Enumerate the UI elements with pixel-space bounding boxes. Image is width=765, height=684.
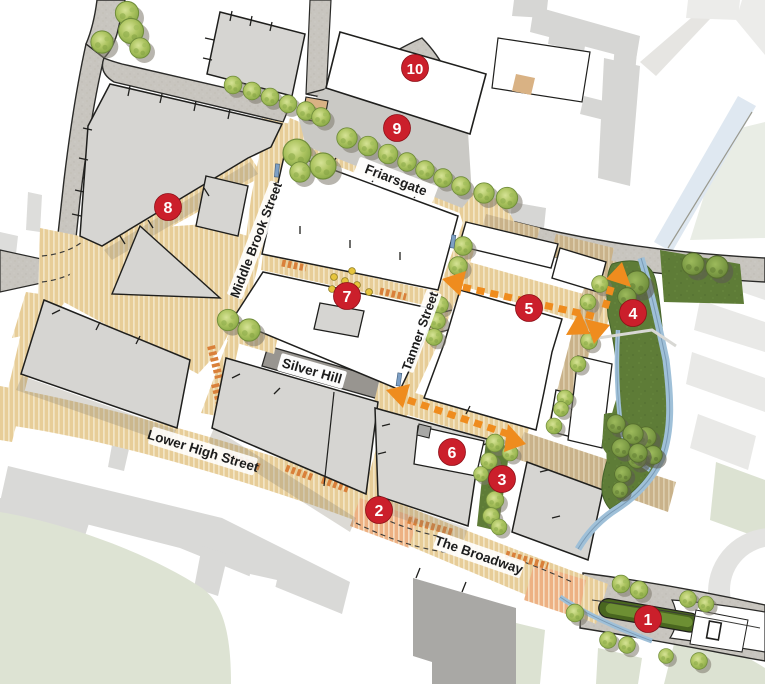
svg-text:9: 9 [393,121,402,138]
svg-text:8: 8 [164,200,173,217]
svg-text:7: 7 [343,289,352,306]
svg-text:4: 4 [629,306,638,323]
svg-text:5: 5 [525,301,534,318]
svg-text:2: 2 [375,503,384,520]
svg-text:6: 6 [448,445,457,462]
svg-text:1: 1 [644,612,653,629]
svg-text:3: 3 [498,472,507,489]
svg-text:10: 10 [407,61,424,78]
